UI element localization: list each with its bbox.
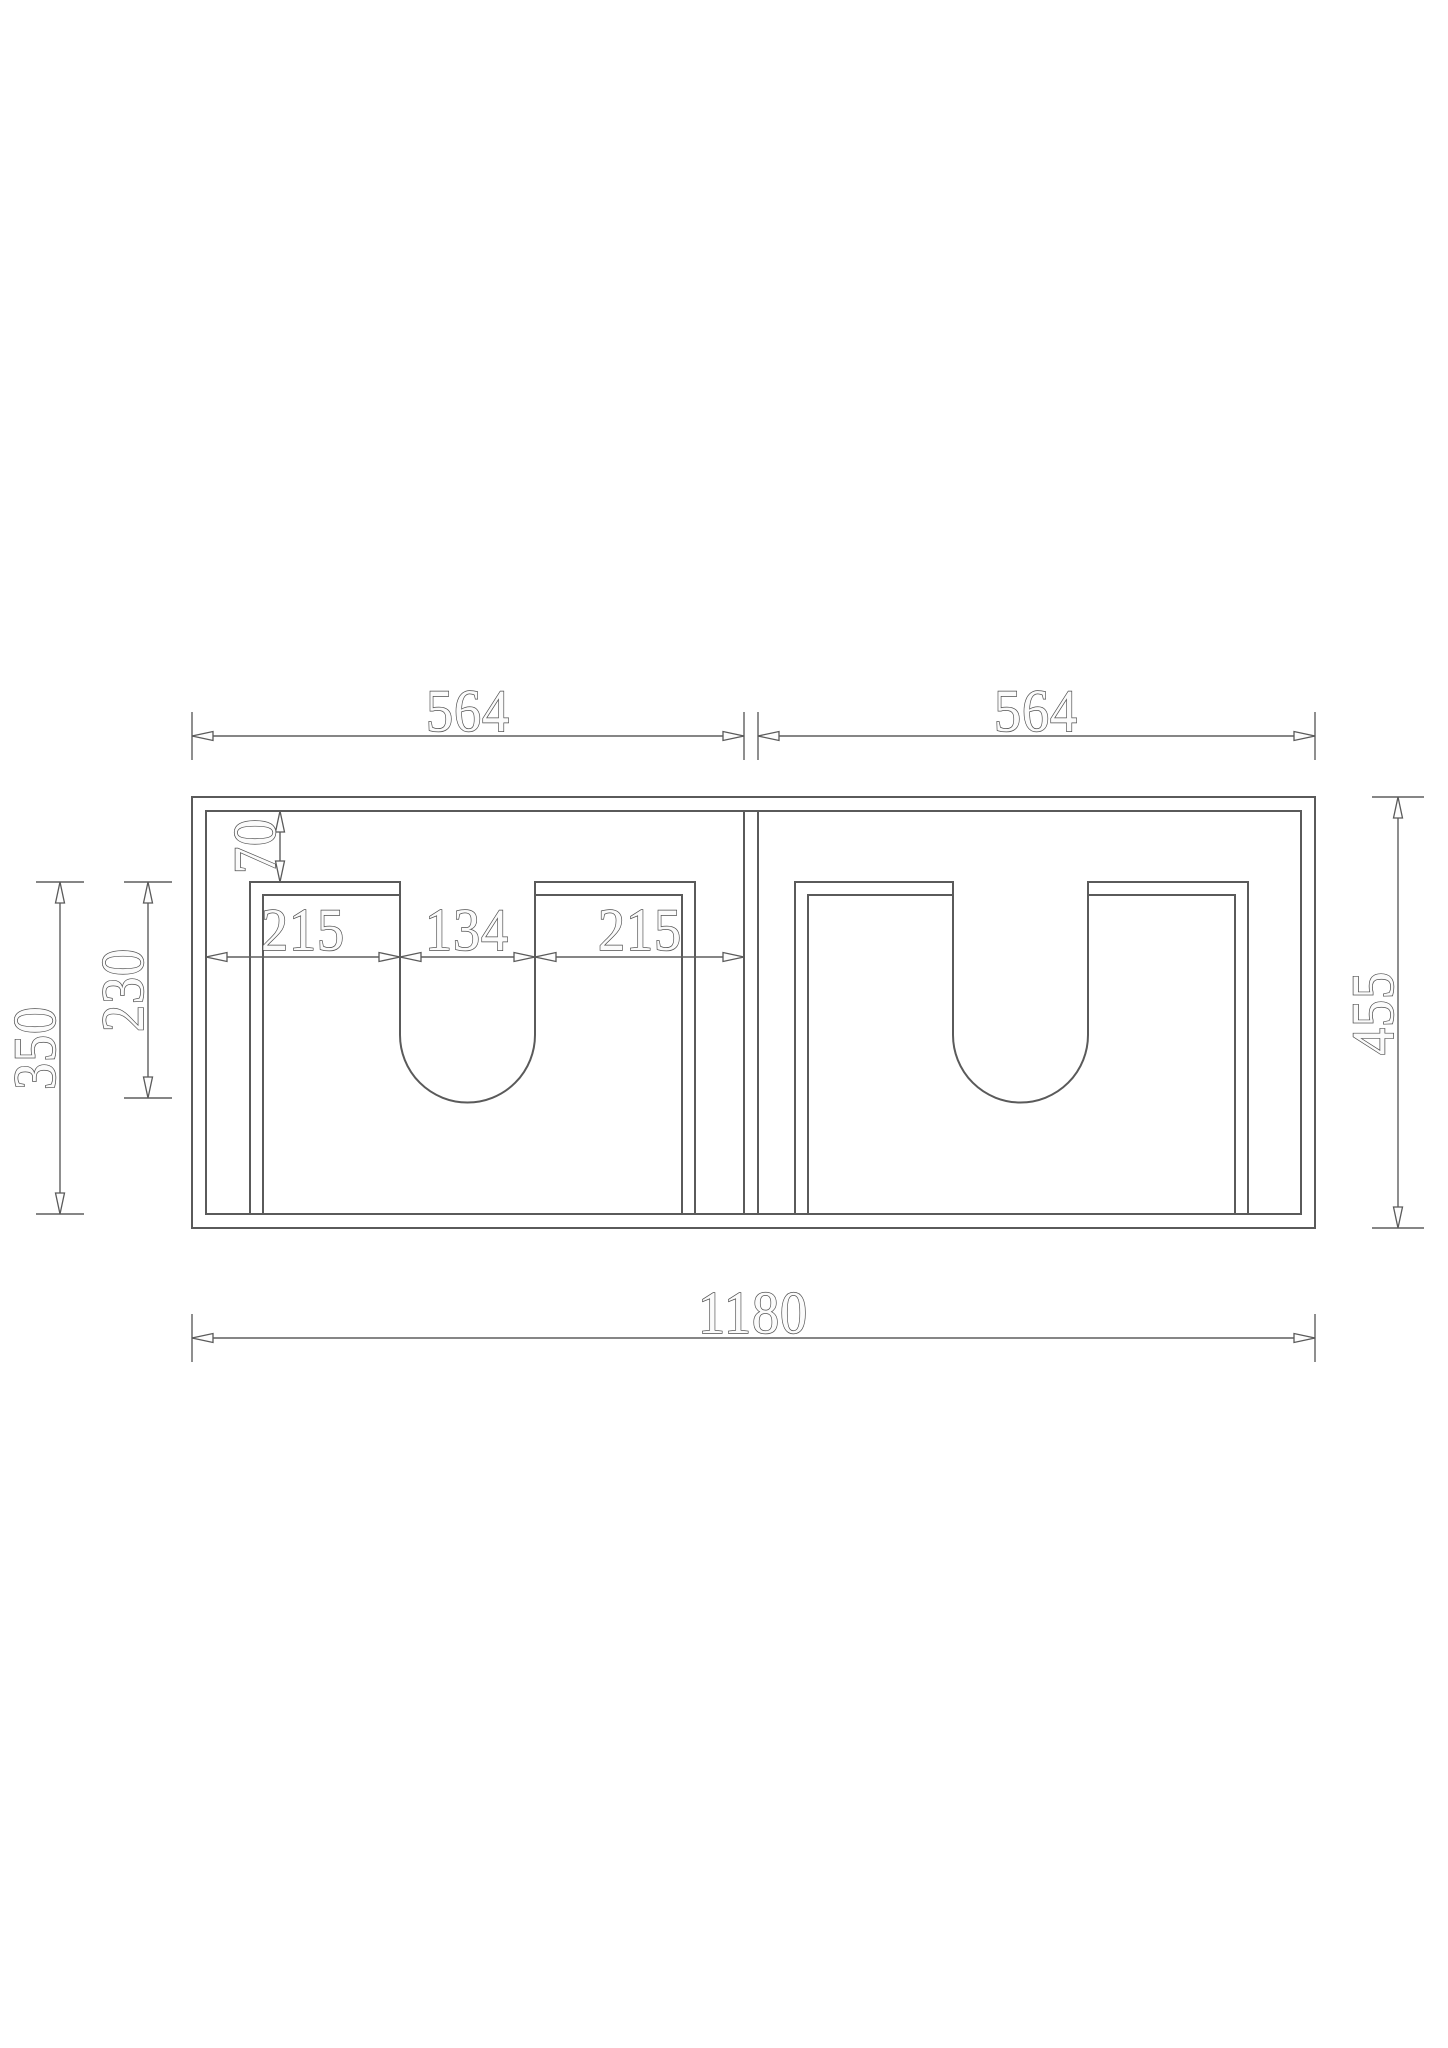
dim-label-overall-width: 1180 — [698, 1280, 808, 1346]
technical-drawing-canvas: 564 564 70 215 134 215 350 230 — [0, 0, 1448, 2048]
dim-panel-depth: 350 — [2, 882, 84, 1214]
dim-label-right-section-width: 564 — [994, 678, 1078, 744]
dim-cutout-offsets: 215 134 215 — [206, 897, 744, 963]
dim-label-left-section-width: 564 — [426, 678, 510, 744]
dim-overall-width: 1180 — [192, 1280, 1315, 1362]
dim-label-overall-depth: 455 — [1340, 971, 1406, 1055]
right-basin-panel — [795, 882, 1248, 1214]
dim-label-top-inset: 70 — [222, 818, 288, 874]
dim-overall-depth: 455 — [1340, 797, 1424, 1228]
dim-right-section-width: 564 — [758, 678, 1315, 760]
dim-cutout-depth: 230 — [90, 882, 172, 1098]
dim-label-cutout-left-offset: 215 — [261, 897, 345, 963]
right-u-cutout — [953, 882, 1088, 1102]
cabinet-outline — [192, 797, 1315, 1228]
dim-label-panel-depth: 350 — [2, 1006, 68, 1090]
dim-left-section-width: 564 — [192, 678, 744, 760]
dim-label-cutout-depth: 230 — [90, 948, 156, 1032]
dim-label-cutout-right-offset: 215 — [598, 897, 682, 963]
cabinet-outer-rect — [192, 797, 1315, 1228]
dim-label-cutout-width: 134 — [425, 897, 509, 963]
vanity-cabinet-drawing: 564 564 70 215 134 215 350 230 — [0, 0, 1448, 2048]
dim-top-inset: 70 — [222, 811, 288, 882]
cabinet-inner-rect — [206, 811, 1301, 1214]
